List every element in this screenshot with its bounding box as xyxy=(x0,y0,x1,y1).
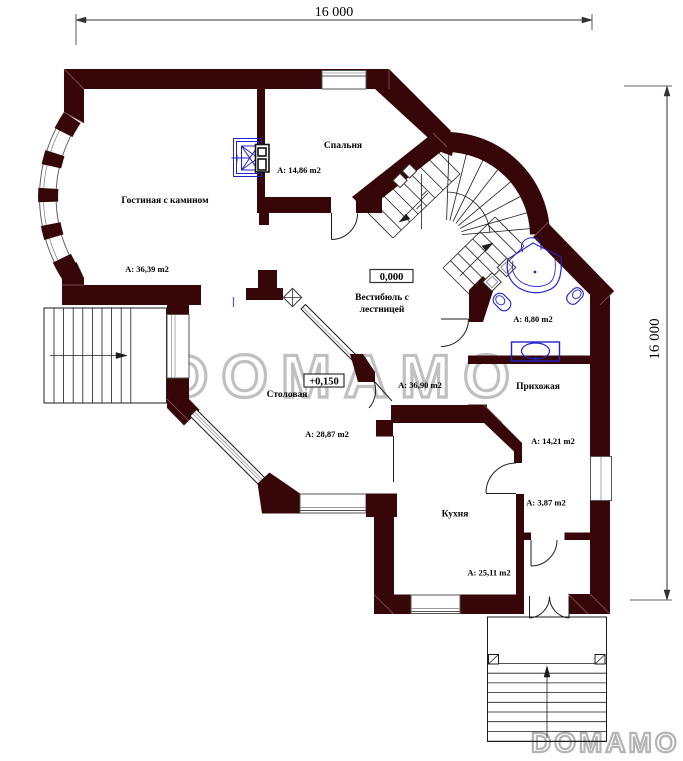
svg-text:Кухня: Кухня xyxy=(442,510,469,520)
svg-text:Гостиная с камином: Гостиная с камином xyxy=(121,196,209,206)
svg-text:A: 8,80 m2: A: 8,80 m2 xyxy=(513,314,552,324)
svg-text:лестницей: лестницей xyxy=(360,304,405,315)
svg-text:A: 25,11 m2: A: 25,11 m2 xyxy=(467,568,510,578)
svg-text:Вестибюль с: Вестибюль с xyxy=(355,292,409,303)
svg-text:Столовая: Столовая xyxy=(267,390,308,400)
svg-text:A: 28,87 m2: A: 28,87 m2 xyxy=(305,429,349,439)
svg-text:Спальня: Спальня xyxy=(324,141,362,151)
svg-text:16 000: 16 000 xyxy=(315,5,354,20)
svg-text:16 000: 16 000 xyxy=(647,318,663,359)
svg-text:A: 14,86 m2: A: 14,86 m2 xyxy=(277,165,321,175)
svg-text:A: 14,21 m2: A: 14,21 m2 xyxy=(531,436,575,446)
svg-text:A: 36,90 m2: A: 36,90 m2 xyxy=(398,380,442,390)
svg-text:+0,150: +0,150 xyxy=(309,377,339,388)
svg-text:A: 3,87 m2: A: 3,87 m2 xyxy=(526,498,565,508)
svg-text:0,000: 0,000 xyxy=(380,272,404,283)
svg-text:Прихожая: Прихожая xyxy=(516,382,560,392)
svg-text:A: 36,39 m2: A: 36,39 m2 xyxy=(125,264,169,274)
